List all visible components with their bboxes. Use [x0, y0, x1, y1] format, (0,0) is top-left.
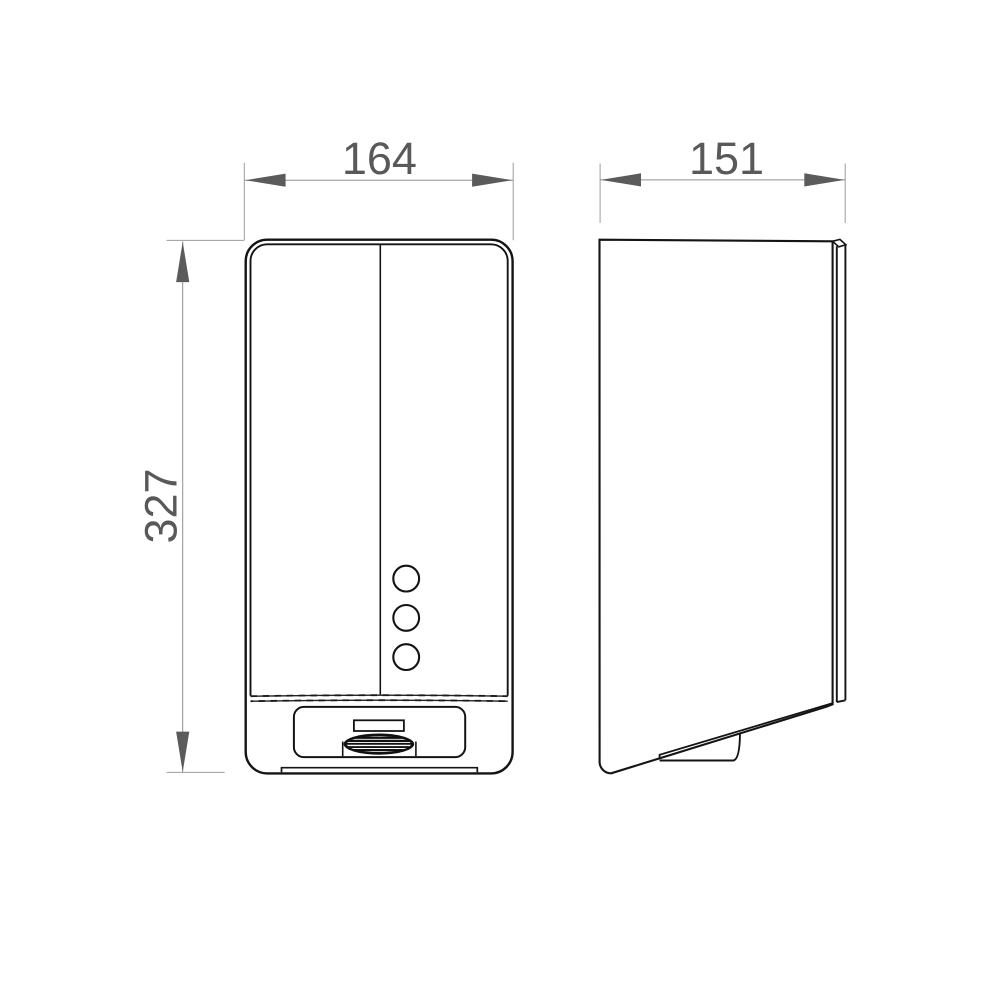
svg-text:151: 151 [689, 133, 764, 184]
svg-text:164: 164 [342, 133, 417, 184]
svg-text:327: 327 [136, 468, 187, 543]
